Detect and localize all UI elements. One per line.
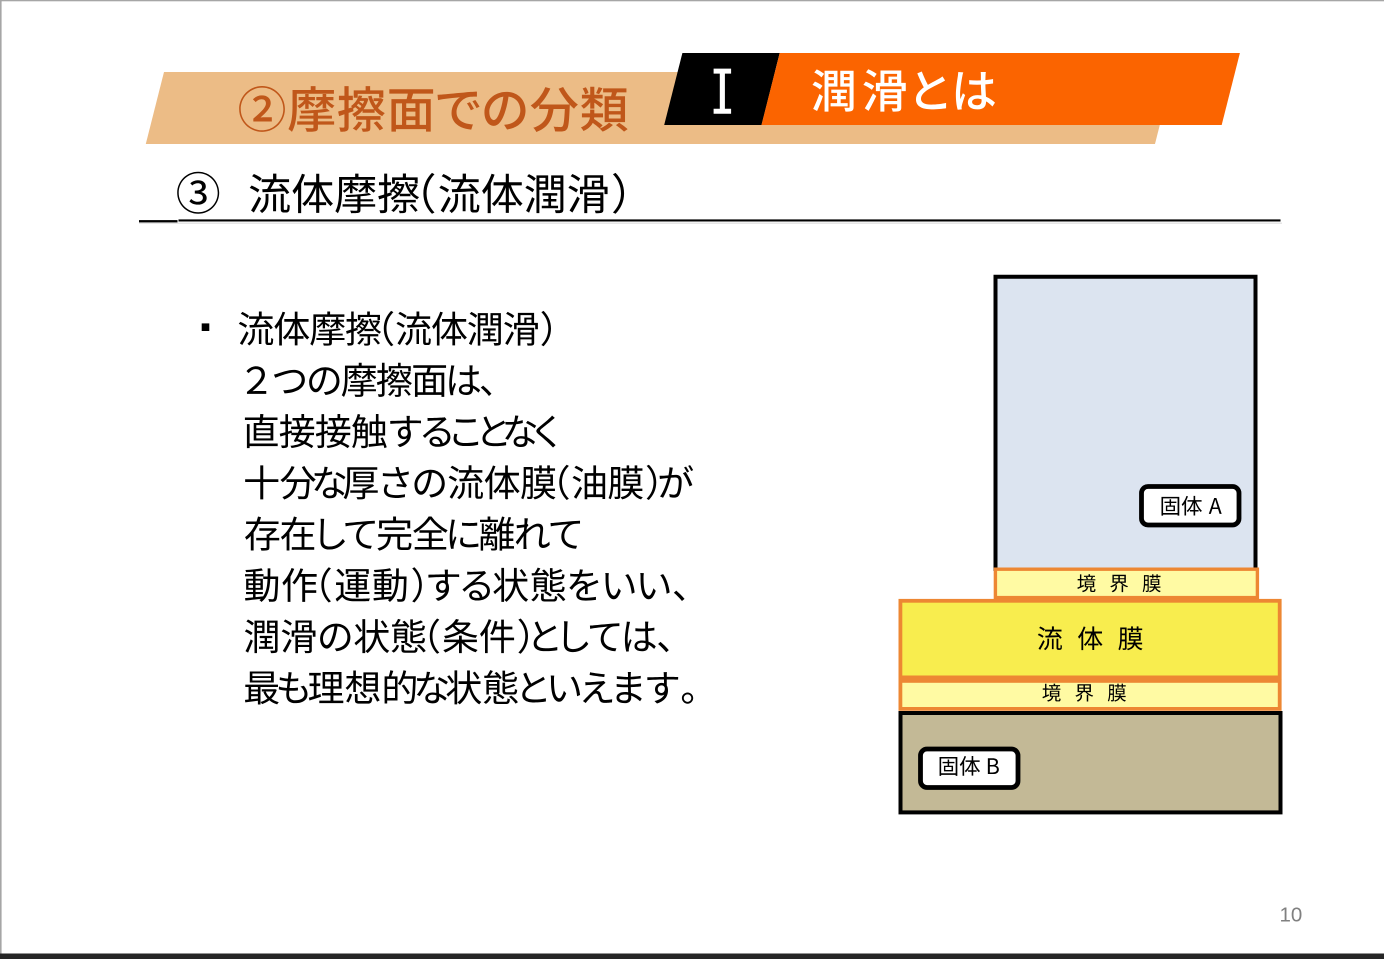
- svg-text:10: 10: [1280, 904, 1303, 927]
